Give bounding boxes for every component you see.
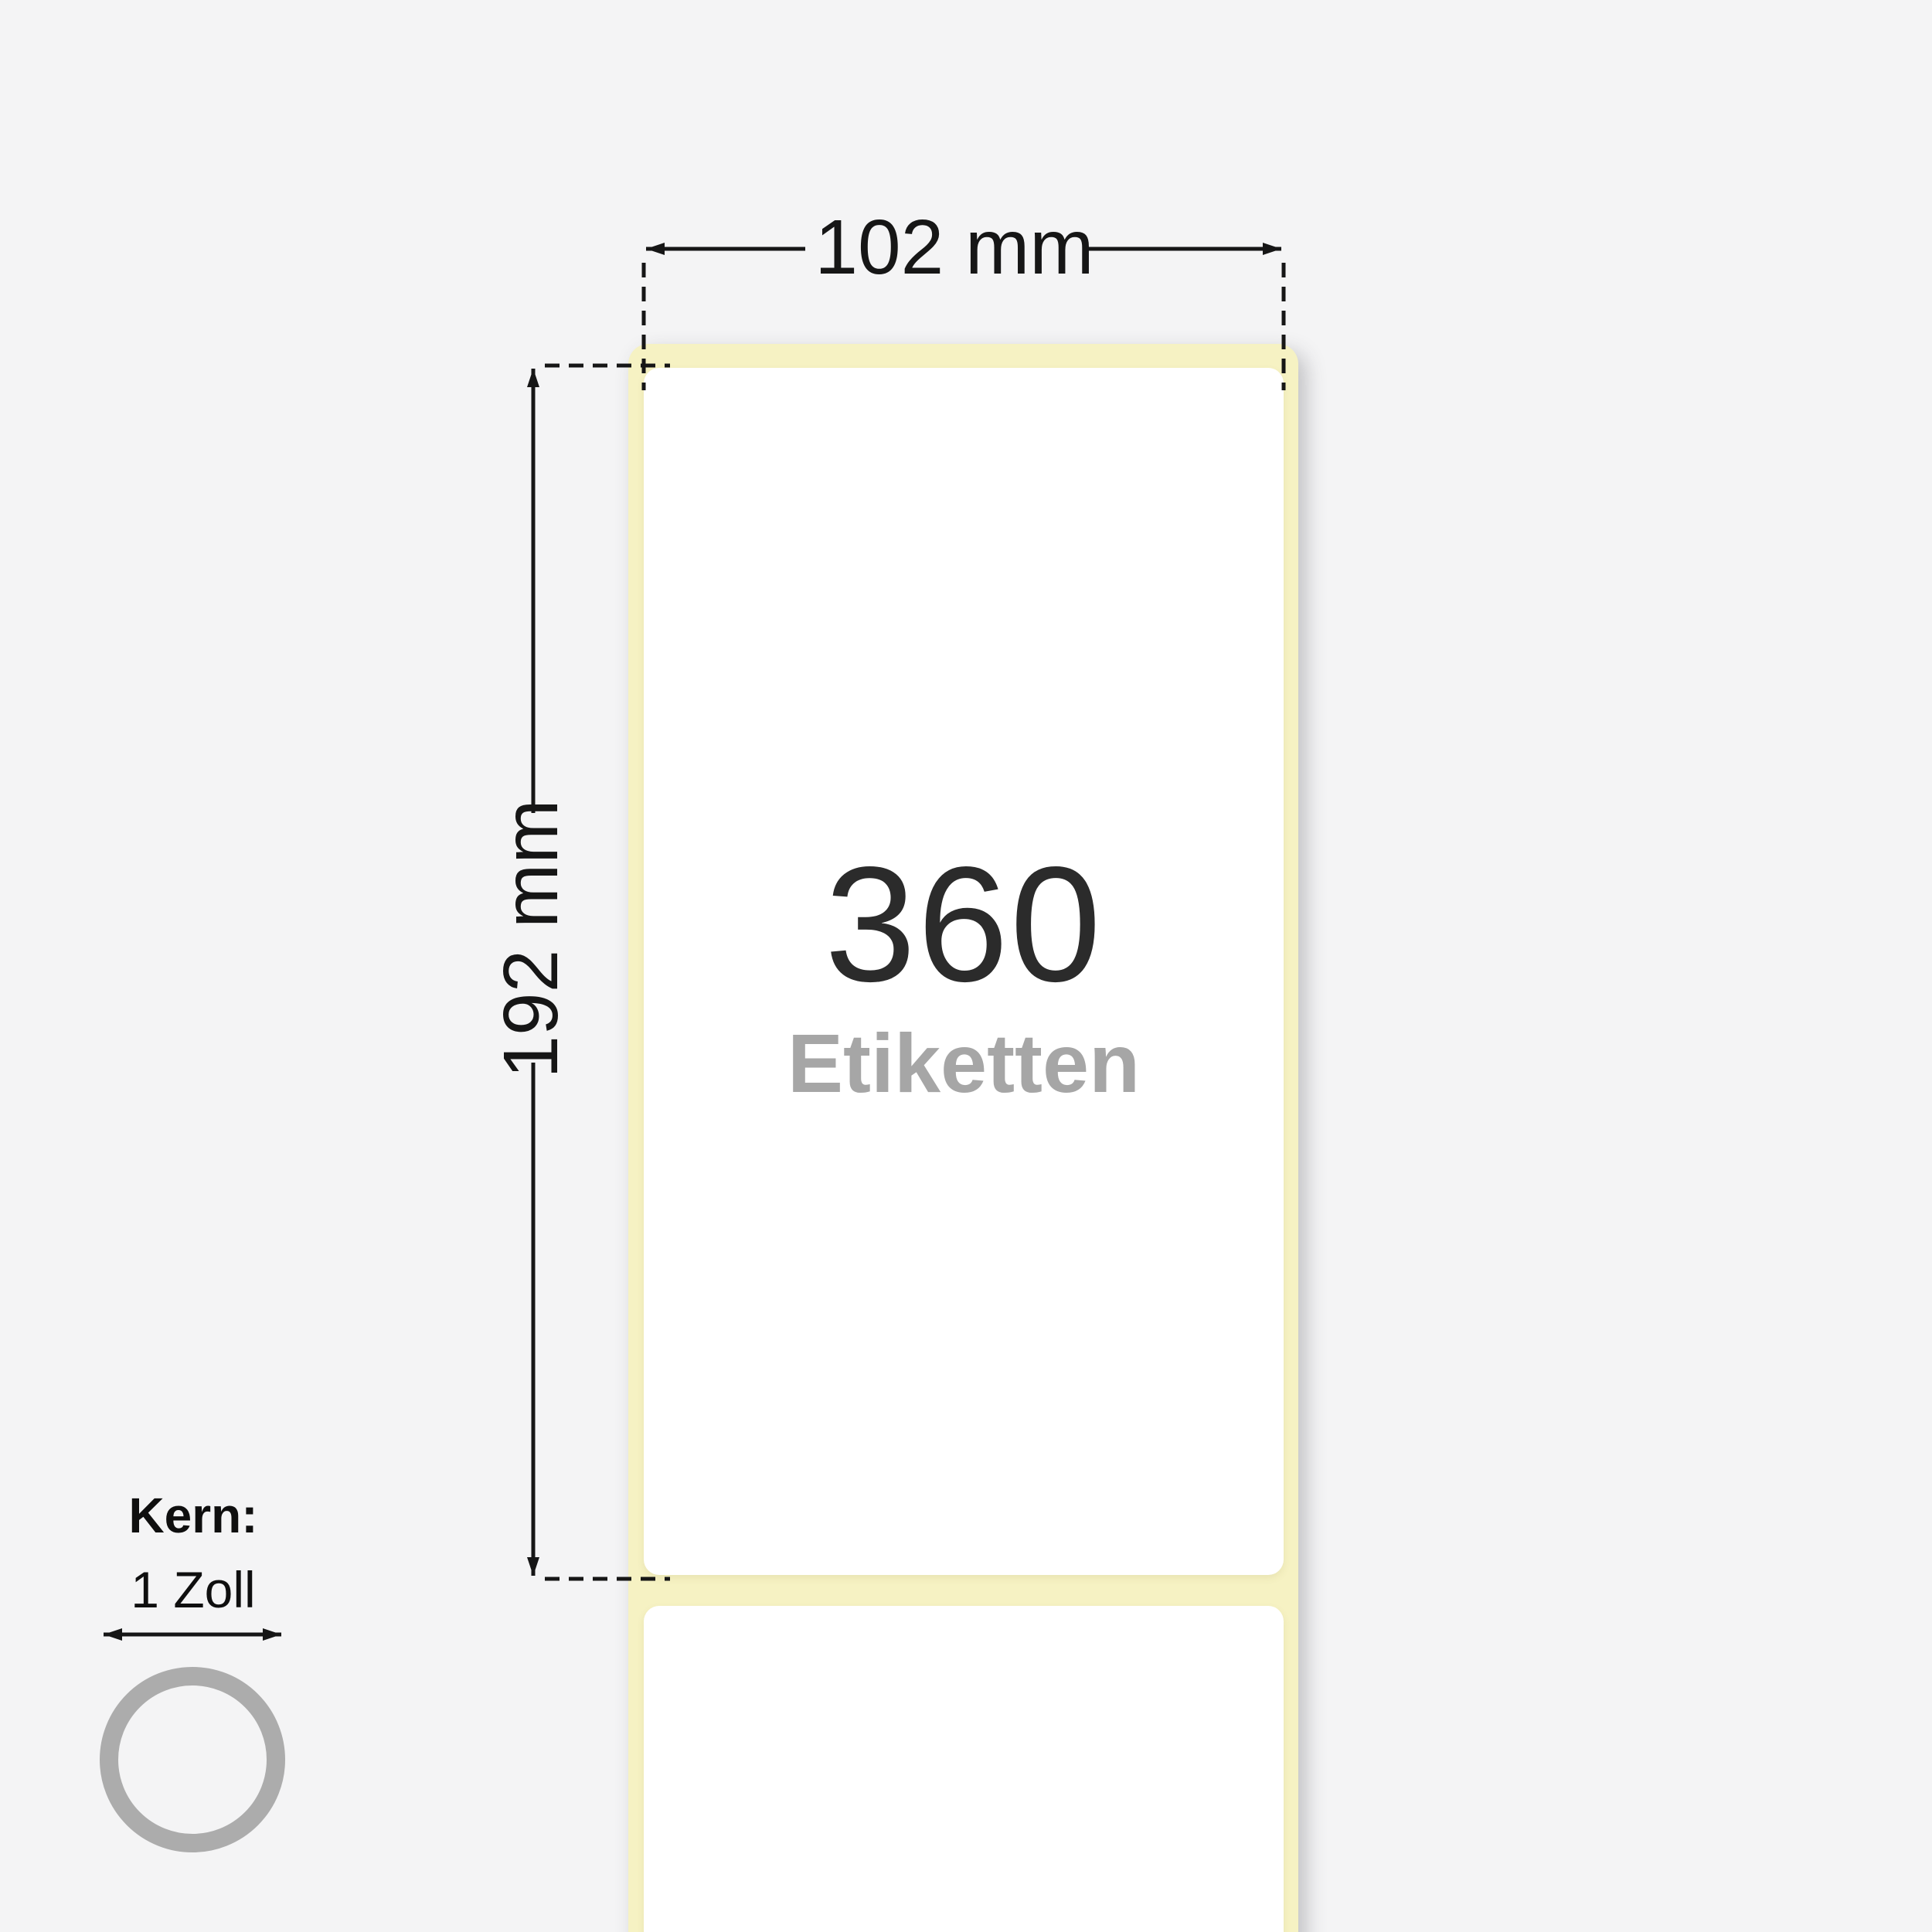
label-count-block: 360 Etiketten [644, 842, 1284, 1105]
width-dimension-label: 102 mm [761, 209, 1148, 286]
core-value: 1 Zoll [77, 1564, 309, 1615]
label-roll-diagram: 360 Etiketten 102 mm 192 mm Kern: [0, 0, 1932, 1932]
label-count: 360 [825, 842, 1103, 1006]
core-title: Kern: [77, 1488, 309, 1543]
core-info-block: Kern: 1 Zoll [77, 1488, 309, 1615]
core-ring-icon [109, 1676, 276, 1843]
label-top: 360 Etiketten [644, 368, 1284, 1575]
label-count-unit: Etiketten [787, 1022, 1140, 1105]
height-dimension-label: 192 mm [492, 799, 570, 1078]
label-bottom [644, 1606, 1284, 1932]
